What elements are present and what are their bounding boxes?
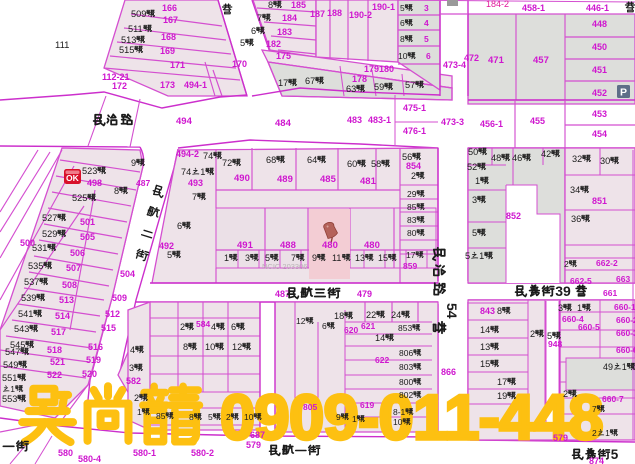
svg-text:515: 515	[101, 323, 116, 333]
svg-text:481: 481	[360, 176, 377, 187]
svg-text:5: 5	[240, 38, 245, 48]
svg-text:529: 529	[42, 229, 57, 239]
svg-text:64: 64	[307, 155, 317, 165]
svg-text:10: 10	[244, 412, 254, 422]
svg-text:2: 2	[592, 428, 597, 438]
svg-text:190-1: 190-1	[372, 2, 395, 12]
svg-text:451: 451	[592, 65, 607, 75]
svg-text:473-4: 473-4	[443, 60, 466, 70]
svg-text:800: 800	[399, 377, 413, 387]
svg-text:168: 168	[161, 32, 176, 42]
svg-text:543: 543	[14, 324, 29, 334]
svg-text:584: 584	[196, 319, 210, 329]
svg-text:517: 517	[51, 327, 66, 337]
svg-text:471: 471	[488, 55, 505, 66]
svg-text:475-1: 475-1	[403, 103, 426, 113]
svg-text:111: 111	[55, 40, 69, 51]
svg-text:1: 1	[577, 303, 582, 313]
svg-text:10: 10	[398, 51, 408, 61]
svg-text:4: 4	[130, 345, 135, 355]
svg-text:13: 13	[355, 253, 365, 263]
svg-text:851: 851	[592, 196, 607, 206]
svg-text:182: 182	[266, 39, 281, 49]
svg-text:6: 6	[231, 322, 236, 332]
svg-text:518: 518	[47, 345, 62, 355]
svg-text:8: 8	[400, 34, 405, 44]
svg-text:6: 6	[177, 221, 182, 231]
svg-text:49: 49	[603, 362, 613, 372]
svg-text:1: 1	[200, 167, 205, 177]
svg-text:547: 547	[5, 347, 20, 357]
svg-text:175: 175	[276, 51, 291, 61]
svg-text:72: 72	[222, 158, 232, 168]
svg-text:5: 5	[167, 250, 172, 260]
svg-text:4: 4	[211, 322, 216, 332]
svg-text:479: 479	[357, 289, 372, 299]
svg-text:179: 179	[364, 64, 379, 74]
svg-text:48: 48	[491, 153, 501, 163]
svg-text:2: 2	[226, 412, 231, 422]
svg-text:579: 579	[246, 440, 261, 450]
svg-text:170: 170	[232, 59, 247, 69]
svg-text:5: 5	[472, 228, 477, 238]
svg-text:10: 10	[205, 342, 215, 352]
svg-text:19: 19	[497, 391, 507, 401]
svg-text:490: 490	[234, 173, 250, 184]
svg-text:169: 169	[160, 46, 175, 56]
svg-text:9: 9	[336, 412, 341, 422]
svg-text:184-2: 184-2	[486, 0, 509, 9]
svg-text:520: 520	[82, 369, 97, 379]
svg-text:5: 5	[611, 447, 619, 462]
svg-text:527: 527	[42, 213, 57, 223]
svg-text:488: 488	[280, 240, 296, 251]
svg-text:1: 1	[137, 407, 142, 417]
svg-text:521: 521	[50, 357, 65, 367]
svg-text:46: 46	[512, 153, 522, 163]
svg-text:539: 539	[21, 293, 36, 303]
svg-text:622: 622	[375, 355, 389, 365]
svg-text:513: 513	[59, 295, 74, 305]
svg-text:453: 453	[592, 109, 607, 119]
svg-text:6: 6	[426, 51, 431, 61]
svg-text:501: 501	[80, 217, 95, 227]
svg-text:29: 29	[407, 189, 417, 199]
svg-text:483: 483	[347, 115, 362, 125]
svg-text:7: 7	[257, 13, 262, 23]
svg-text:500: 500	[20, 238, 35, 248]
svg-text:492: 492	[159, 241, 174, 251]
svg-text:508: 508	[62, 280, 77, 290]
svg-text:620: 620	[344, 325, 358, 335]
svg-text:3: 3	[245, 253, 250, 263]
svg-text:50: 50	[468, 147, 478, 157]
svg-text:854: 854	[406, 161, 421, 171]
svg-text:187: 187	[310, 9, 325, 19]
svg-text:516: 516	[88, 342, 103, 352]
svg-text:485: 485	[320, 174, 337, 185]
svg-text:509: 509	[112, 293, 127, 303]
svg-text:660-1: 660-1	[614, 302, 635, 312]
svg-text:17: 17	[278, 78, 288, 88]
svg-text:52: 52	[467, 162, 477, 172]
svg-text:34: 34	[570, 185, 580, 195]
svg-text:13: 13	[480, 342, 490, 352]
svg-text:85: 85	[407, 202, 417, 212]
svg-text:8: 8	[183, 342, 188, 352]
svg-text:8: 8	[114, 186, 119, 196]
svg-text:513: 513	[121, 35, 136, 45]
svg-text:7: 7	[192, 192, 197, 202]
svg-text:12: 12	[232, 342, 242, 352]
svg-text:183: 183	[277, 27, 292, 37]
svg-text:5: 5	[208, 412, 213, 422]
svg-text:874: 874	[589, 456, 604, 464]
svg-text:30: 30	[600, 156, 610, 166]
svg-text:OK: OK	[66, 173, 80, 183]
svg-text:3: 3	[129, 363, 134, 373]
svg-text:58: 58	[371, 159, 381, 169]
svg-text:535: 535	[28, 261, 43, 271]
svg-text:8-1: 8-1	[393, 407, 406, 417]
svg-text:660-3: 660-3	[616, 328, 635, 338]
svg-text:660-2: 660-2	[616, 315, 635, 325]
svg-text:166: 166	[162, 3, 177, 13]
svg-text:662-5: 662-5	[570, 276, 592, 286]
svg-text:54: 54	[444, 303, 460, 319]
svg-text:660-5: 660-5	[578, 322, 600, 332]
svg-text:2: 2	[180, 322, 185, 332]
svg-text:10: 10	[393, 417, 403, 427]
svg-text:446-1: 446-1	[586, 3, 609, 13]
svg-text:541: 541	[18, 309, 33, 319]
svg-text:172: 172	[112, 81, 127, 91]
svg-text:491: 491	[237, 240, 254, 251]
svg-text:14: 14	[480, 325, 490, 335]
svg-text:5: 5	[465, 251, 470, 261]
svg-text:36: 36	[571, 214, 581, 224]
svg-text:619: 619	[360, 400, 374, 410]
svg-text:3: 3	[558, 303, 563, 313]
svg-text:15: 15	[480, 359, 490, 369]
svg-text:458-1: 458-1	[522, 3, 545, 13]
svg-text:2: 2	[134, 393, 139, 403]
svg-text:663: 663	[616, 274, 630, 284]
svg-text:484: 484	[275, 118, 292, 129]
svg-text:22: 22	[366, 310, 376, 320]
svg-text:11: 11	[332, 253, 341, 263]
svg-text:803: 803	[399, 362, 413, 372]
svg-text:525: 525	[72, 193, 87, 203]
svg-text:948: 948	[548, 339, 562, 349]
svg-text:85: 85	[156, 411, 166, 421]
svg-text:17: 17	[497, 377, 507, 387]
svg-text:660-6: 660-6	[616, 345, 635, 355]
svg-text:68: 68	[266, 155, 276, 165]
svg-text:8: 8	[497, 306, 502, 316]
svg-text:489: 489	[277, 174, 293, 185]
svg-text:3: 3	[424, 3, 429, 13]
svg-text:8: 8	[268, 0, 273, 10]
svg-text:178: 178	[352, 74, 367, 84]
svg-text:7: 7	[592, 404, 597, 414]
svg-text:457: 457	[533, 55, 549, 66]
svg-text:843: 843	[480, 306, 495, 316]
svg-text:39: 39	[555, 283, 571, 299]
svg-text:802: 802	[399, 390, 413, 400]
svg-text:6: 6	[251, 26, 256, 36]
svg-text:80: 80	[407, 228, 417, 238]
svg-text:504: 504	[120, 269, 135, 279]
svg-text:74: 74	[181, 167, 191, 177]
svg-text:493: 493	[188, 178, 203, 188]
svg-text:519: 519	[86, 355, 101, 365]
svg-text:12: 12	[296, 316, 306, 326]
svg-text:454: 454	[592, 129, 607, 139]
svg-text:553: 553	[2, 394, 17, 404]
svg-text:450: 450	[592, 42, 607, 52]
svg-text:67: 67	[305, 76, 315, 86]
svg-text:483-1: 483-1	[368, 115, 391, 125]
svg-text:32: 32	[572, 154, 582, 164]
svg-text:498: 498	[87, 178, 102, 188]
svg-text:P: P	[620, 87, 627, 99]
svg-text:448: 448	[592, 19, 607, 29]
svg-text:8: 8	[189, 412, 194, 422]
svg-text:63: 63	[346, 84, 356, 94]
svg-text:1: 1	[622, 362, 627, 372]
svg-text:480: 480	[364, 240, 380, 251]
svg-text:4: 4	[424, 18, 429, 28]
svg-text:6: 6	[400, 18, 405, 28]
svg-text:6: 6	[322, 321, 327, 331]
svg-text:1: 1	[475, 176, 480, 186]
svg-text:480: 480	[322, 240, 338, 251]
svg-text:660-7: 660-7	[602, 394, 624, 404]
svg-text:509: 509	[131, 9, 146, 19]
svg-text:859: 859	[403, 261, 417, 271]
svg-text:852: 852	[506, 211, 521, 221]
svg-text:5: 5	[424, 34, 429, 44]
svg-text:2: 2	[530, 329, 535, 339]
svg-text:455: 455	[530, 116, 545, 126]
svg-text:580-4: 580-4	[78, 454, 101, 464]
svg-text:2: 2	[411, 171, 416, 181]
svg-text:18: 18	[334, 311, 344, 321]
svg-text:512: 512	[105, 309, 120, 319]
svg-text:185: 185	[291, 0, 306, 10]
svg-text:2: 2	[564, 259, 569, 269]
svg-text:853: 853	[398, 323, 412, 333]
svg-text:580-2: 580-2	[191, 448, 214, 458]
svg-text:494-1: 494-1	[184, 80, 207, 90]
svg-text:551: 551	[2, 373, 17, 383]
svg-text:15: 15	[378, 253, 388, 263]
svg-text:184: 184	[282, 13, 297, 23]
svg-text:83: 83	[407, 215, 417, 225]
svg-text:1: 1	[10, 384, 15, 394]
svg-text:494: 494	[176, 116, 193, 127]
svg-text:662-2: 662-2	[596, 258, 618, 268]
svg-text:494-2: 494-2	[176, 149, 199, 159]
svg-text:580-1: 580-1	[133, 448, 156, 458]
svg-text:505: 505	[80, 232, 95, 242]
svg-text:456-1: 456-1	[480, 119, 503, 129]
svg-text:180: 180	[379, 64, 394, 74]
svg-text:17: 17	[406, 250, 416, 260]
svg-text:476-1: 476-1	[403, 126, 426, 136]
svg-text:42: 42	[541, 149, 551, 159]
svg-text:9: 9	[312, 253, 317, 263]
svg-text:452: 452	[592, 88, 607, 98]
svg-text:59: 59	[374, 82, 384, 92]
svg-text:523: 523	[82, 166, 97, 176]
svg-text:806: 806	[399, 348, 413, 358]
svg-text:1: 1	[224, 253, 229, 263]
svg-text:549: 549	[3, 360, 18, 370]
svg-text:2: 2	[563, 389, 568, 399]
svg-text:74: 74	[203, 151, 213, 161]
svg-text:9: 9	[131, 158, 136, 168]
svg-text:60: 60	[347, 159, 357, 169]
svg-text:472: 472	[464, 53, 479, 63]
svg-text:1: 1	[605, 428, 610, 438]
svg-text:190-2: 190-2	[349, 10, 372, 20]
svg-text:582: 582	[126, 376, 141, 386]
svg-text:537: 537	[24, 277, 39, 287]
svg-text:514: 514	[55, 311, 70, 321]
svg-text:5: 5	[400, 3, 405, 13]
svg-text:24: 24	[391, 310, 401, 320]
svg-text:1: 1	[479, 251, 484, 261]
svg-text:167: 167	[163, 15, 178, 25]
svg-text:506: 506	[70, 248, 85, 258]
svg-text:1: 1	[352, 414, 357, 424]
svg-text:57: 57	[405, 80, 415, 90]
svg-text:579: 579	[553, 433, 568, 443]
svg-text:511: 511	[128, 24, 143, 34]
svg-text:522: 522	[47, 370, 62, 380]
svg-text:188: 188	[327, 8, 342, 18]
svg-text:473-3: 473-3	[441, 117, 464, 127]
svg-text:866: 866	[441, 367, 456, 377]
svg-text:14: 14	[375, 333, 385, 343]
svg-text:805: 805	[303, 402, 317, 412]
svg-text:NCIC 203306: NCIC 203306	[262, 262, 307, 271]
svg-text:661: 661	[603, 288, 617, 298]
svg-text:171: 171	[170, 60, 185, 70]
svg-text:3: 3	[472, 195, 477, 205]
svg-text:515: 515	[119, 45, 134, 55]
svg-text:487: 487	[136, 178, 150, 188]
svg-text:173: 173	[160, 80, 175, 90]
svg-text:687: 687	[250, 430, 265, 440]
svg-text:580: 580	[58, 448, 73, 458]
svg-text:507: 507	[66, 263, 81, 273]
svg-text:621: 621	[361, 321, 375, 331]
